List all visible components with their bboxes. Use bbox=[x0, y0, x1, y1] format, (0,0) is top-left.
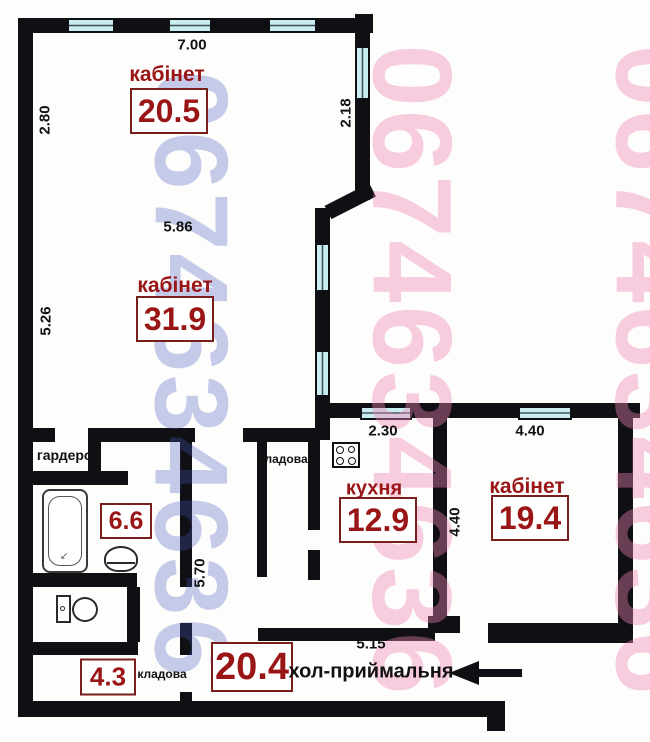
area-value-bathroom: 6.6 bbox=[100, 503, 152, 539]
window bbox=[268, 18, 317, 33]
wall bbox=[487, 701, 505, 731]
room-label-cabinet-mid: кабінет bbox=[137, 274, 212, 298]
wall bbox=[18, 18, 33, 717]
dimension-label: 2.30 bbox=[368, 423, 397, 440]
stove-burner bbox=[336, 457, 344, 465]
room-label-cabinet-top: кабінет bbox=[129, 63, 204, 87]
dimension-label: 5.86 bbox=[163, 219, 192, 236]
area-value-storage-bottom: 4.3 bbox=[80, 659, 136, 696]
wall bbox=[308, 428, 320, 530]
wall bbox=[257, 428, 267, 577]
dimension-label: 7.00 bbox=[177, 37, 206, 54]
wall bbox=[433, 407, 447, 619]
sink-icon bbox=[104, 546, 138, 572]
window bbox=[518, 406, 572, 420]
window bbox=[315, 243, 330, 292]
dimension-label: 2.18 bbox=[338, 98, 355, 127]
window bbox=[315, 350, 330, 397]
toilet-button bbox=[60, 606, 65, 611]
wall bbox=[488, 623, 633, 643]
room-label-storage-top: кладова bbox=[258, 452, 307, 466]
wall bbox=[180, 428, 192, 587]
area-value-cabinet-mid: 31.9 bbox=[136, 296, 214, 342]
dimension-label: 4.40 bbox=[515, 423, 544, 440]
window bbox=[168, 18, 212, 33]
wall bbox=[33, 428, 55, 442]
wall bbox=[127, 587, 140, 642]
wall bbox=[33, 471, 128, 485]
wall bbox=[618, 407, 633, 643]
wall bbox=[18, 701, 505, 717]
dimension-label: 5.26 bbox=[38, 306, 55, 335]
floor-plan: 0674634636 0674634636 0674634636 кабінет… bbox=[0, 0, 650, 742]
area-value-cabinet-top: 20.5 bbox=[130, 88, 208, 134]
room-label-hall: хол-приймальня bbox=[289, 661, 454, 684]
wall bbox=[180, 692, 192, 705]
window bbox=[355, 46, 370, 100]
wall bbox=[355, 14, 373, 33]
room-label-wardrobe: гардероб bbox=[37, 447, 101, 463]
bathtub-drain-icon: ↙ bbox=[60, 551, 68, 562]
wall bbox=[325, 183, 376, 219]
window bbox=[360, 406, 412, 420]
dimension-label: 2.80 bbox=[37, 105, 54, 134]
wall bbox=[33, 642, 138, 655]
dimension-label: 5.70 bbox=[192, 558, 209, 587]
window bbox=[67, 18, 115, 33]
wall bbox=[33, 573, 137, 587]
wall bbox=[258, 628, 435, 641]
sink-edge bbox=[107, 562, 135, 564]
stove-burner bbox=[348, 457, 356, 465]
wall bbox=[308, 550, 320, 580]
area-value-cabinet-right: 19.4 bbox=[491, 495, 569, 541]
stove-icon bbox=[332, 442, 360, 468]
area-value-kitchen: 12.9 bbox=[339, 497, 417, 543]
wall bbox=[88, 428, 195, 442]
dimension-label: 4.40 bbox=[447, 507, 464, 536]
entrance-arrow-shaft bbox=[478, 669, 522, 677]
wall bbox=[180, 623, 192, 655]
area-value-hall: 20.4 bbox=[211, 642, 293, 692]
dimension-label: 5.15 bbox=[356, 636, 385, 653]
entrance-arrow-icon bbox=[449, 661, 479, 685]
watermark-phone-blue: 0674634636 bbox=[131, 71, 250, 679]
room-label-storage-bottom: кладова bbox=[137, 667, 186, 681]
stove-burner bbox=[336, 446, 344, 454]
toilet-bowl-icon bbox=[72, 597, 98, 622]
